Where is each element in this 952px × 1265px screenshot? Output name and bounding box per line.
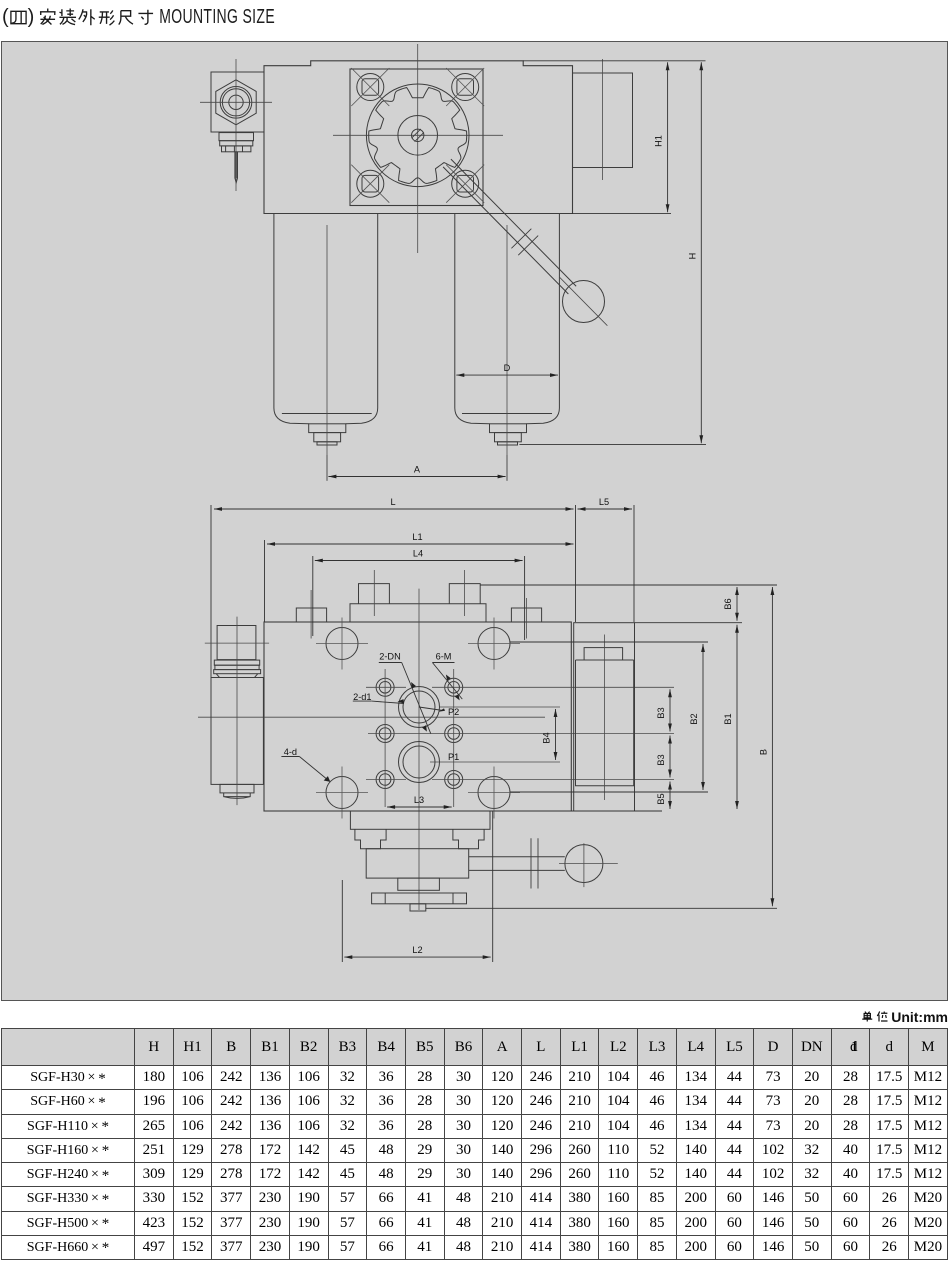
svg-text:L3: L3 [414,795,424,805]
svg-text:2-DN: 2-DN [379,651,400,661]
svg-text:B6: B6 [723,598,733,609]
svg-text:L2: L2 [412,945,422,955]
svg-text:B: B [758,749,768,755]
svg-text:L1: L1 [412,532,422,542]
svg-text:2-d1: 2-d1 [353,692,371,702]
svg-text:L4: L4 [413,549,423,559]
svg-text:6-M: 6-M [436,651,452,661]
svg-text:L5: L5 [599,497,609,507]
svg-text:B2: B2 [689,713,699,724]
svg-text:H1: H1 [654,135,664,147]
svg-text:A: A [414,465,421,475]
svg-text:B1: B1 [723,713,733,724]
svg-text:B3: B3 [656,707,666,718]
svg-text:B3: B3 [656,754,666,765]
svg-text:L: L [390,497,395,507]
svg-text:B5: B5 [656,793,666,804]
svg-text:4-d: 4-d [284,747,297,757]
svg-text:P2: P2 [448,707,459,717]
svg-text:B4: B4 [542,732,552,743]
svg-text:D: D [504,363,511,373]
svg-text:H: H [687,253,697,260]
svg-text:P1: P1 [448,752,459,762]
